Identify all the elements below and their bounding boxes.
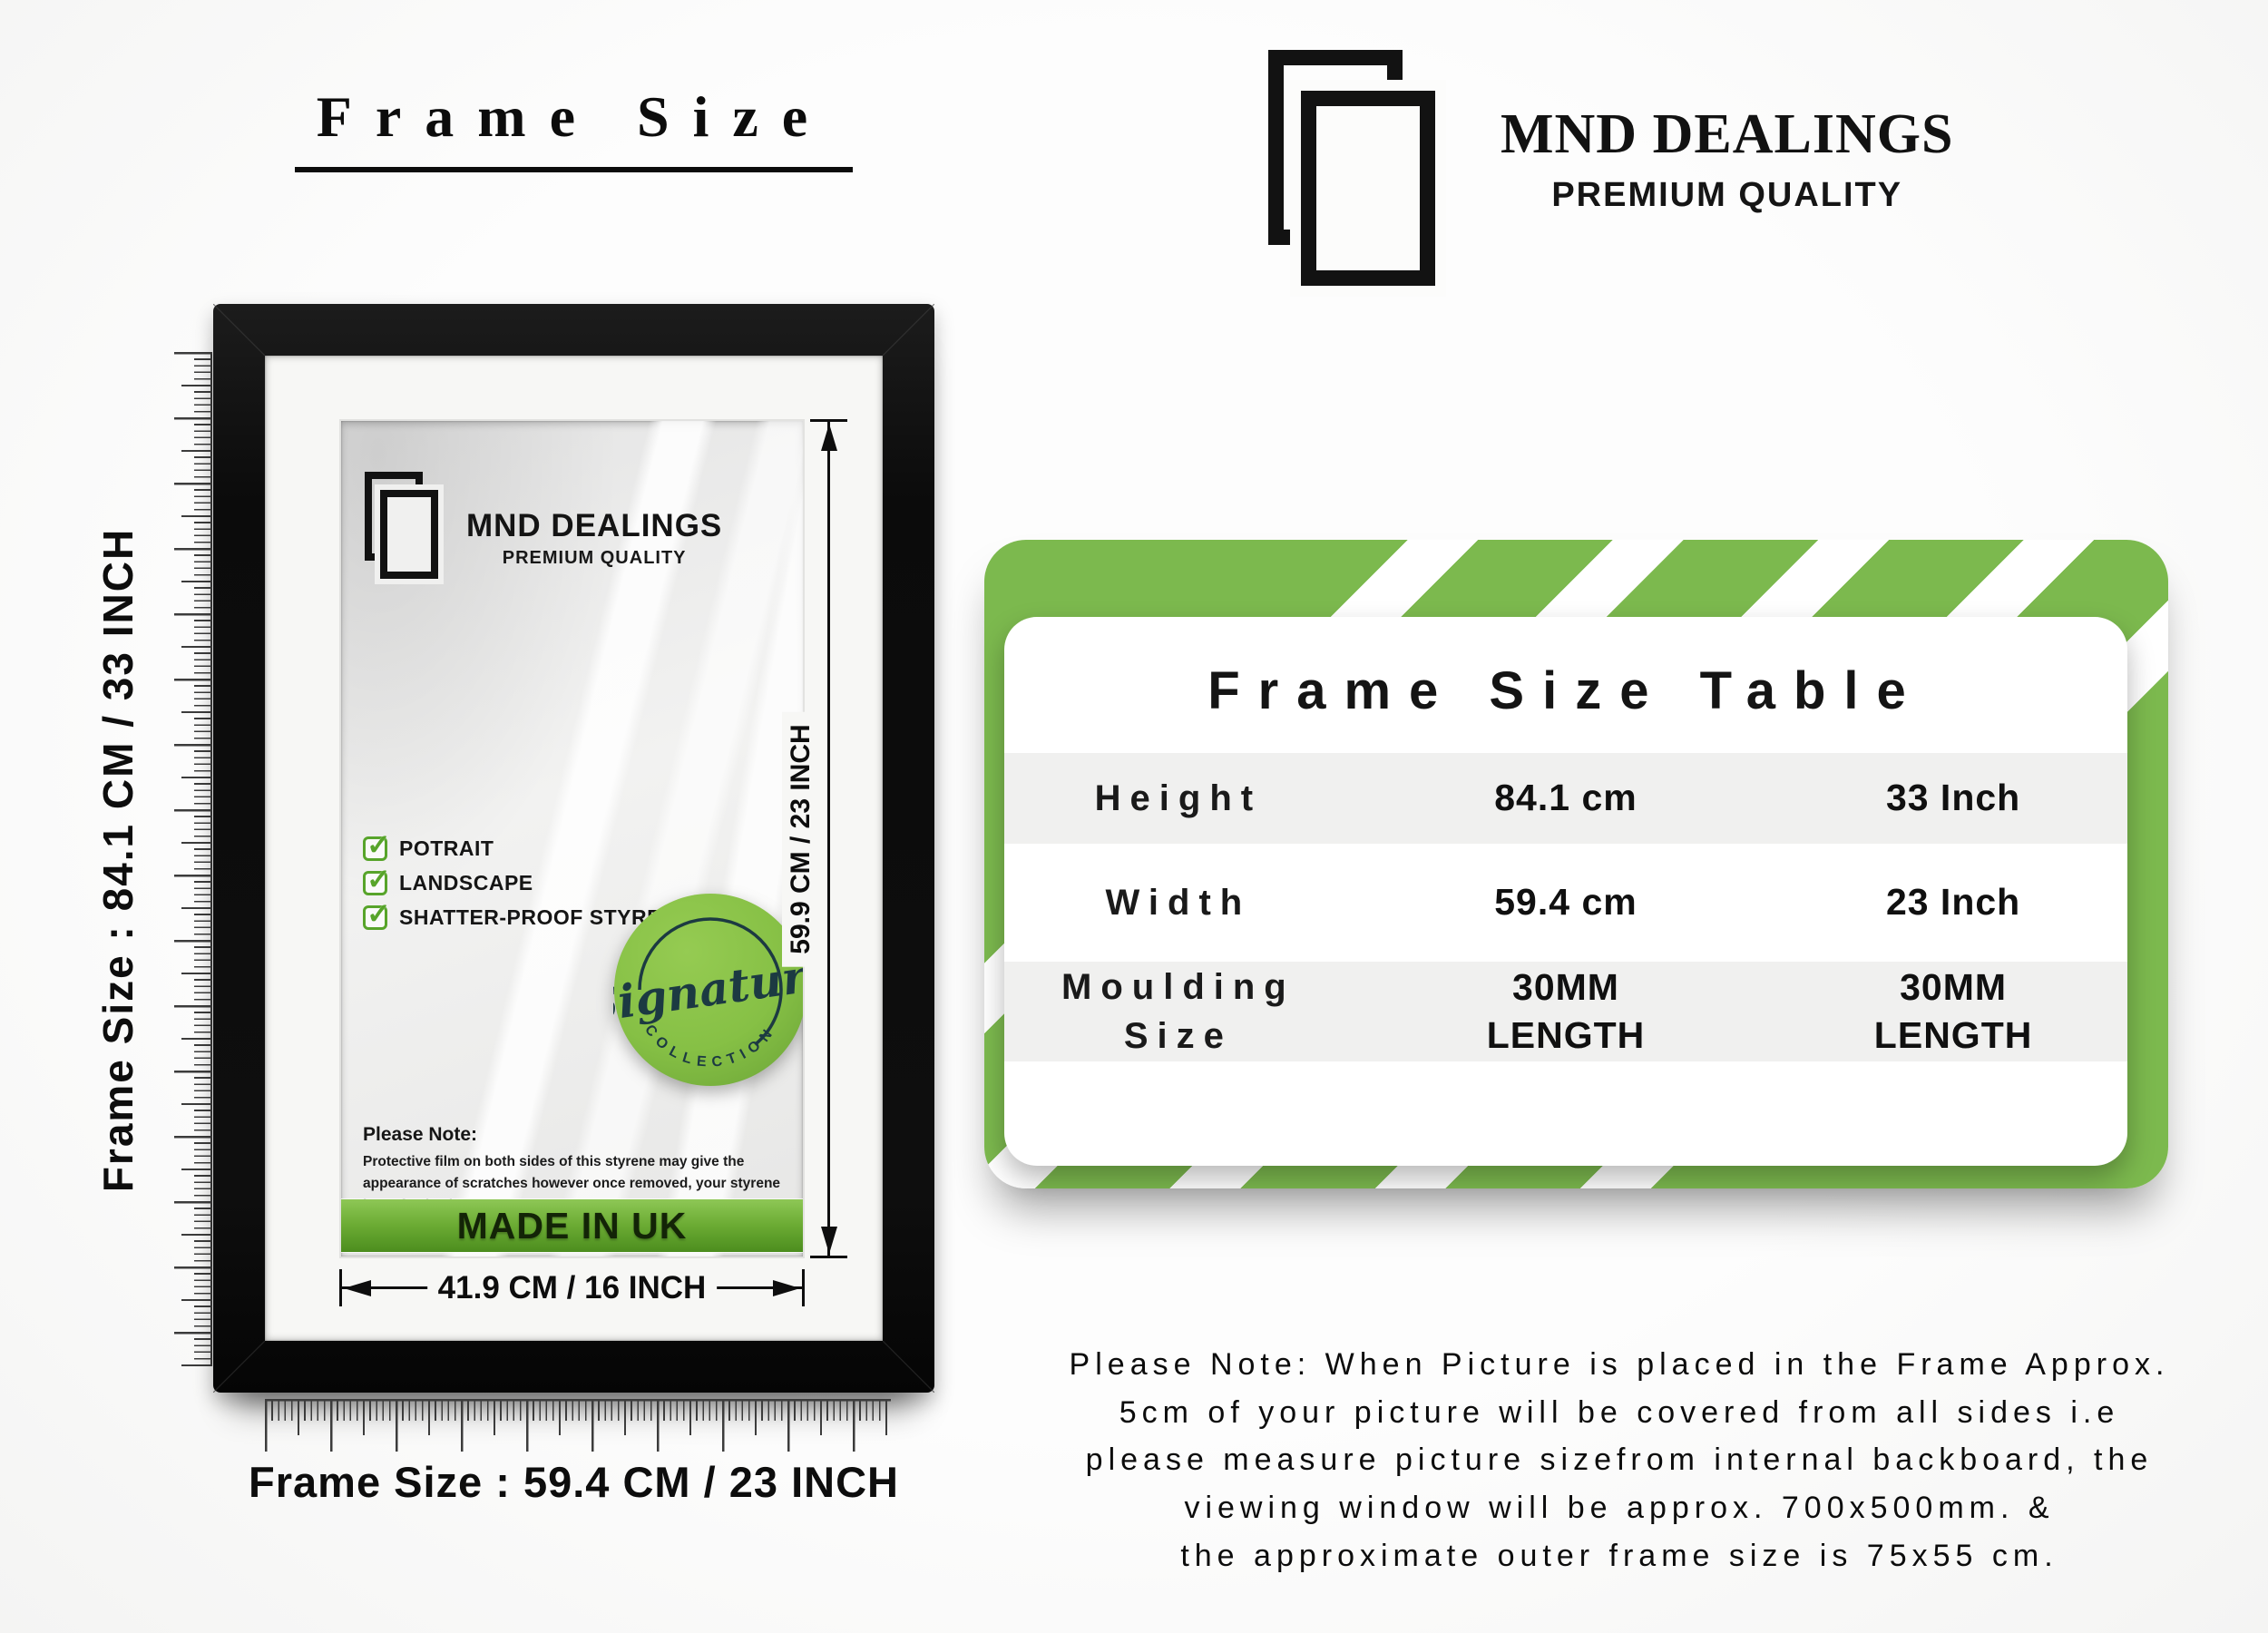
dimension-tick	[810, 419, 847, 422]
frames-logo-icon	[1268, 50, 1477, 322]
styrene-note-title: Please Note:	[363, 1124, 787, 1146]
checkbox-icon: ✓	[363, 836, 387, 861]
checkmark-icon: ✓	[367, 830, 391, 859]
row-metric-value: 84.1 cm	[1353, 774, 1779, 822]
checkmark-icon: ✓	[367, 899, 391, 928]
sizing-note-line: please measure picture sizefrom internal…	[1043, 1436, 2195, 1484]
sizing-note-line: Please Note: When Picture is placed in t…	[1043, 1341, 2195, 1389]
frame-mat: MND DEALINGS PREMIUM QUALITY ✓ POTRAIT ✓…	[265, 356, 883, 1341]
arrow-left-icon	[344, 1280, 371, 1296]
inner-brand-text: MND DEALINGS PREMIUM QUALITY	[466, 508, 722, 599]
frame-product-infographic: Frame Size Frame Size : 84.1 CM / 33 INC…	[0, 0, 2268, 1633]
feature-label: LANDSCAPE	[399, 871, 533, 895]
table-row: Width 59.4 cm 23 Inch	[1004, 844, 2127, 962]
frame-miter-corner	[883, 304, 934, 356]
checkbox-icon: ✓	[363, 905, 387, 930]
signature-collection-badge: Signature COLLECTION	[613, 893, 805, 1087]
frames-logo-icon	[365, 472, 455, 599]
inner-brand-name: MND DEALINGS	[466, 508, 722, 544]
frame-size-table-card: Frame Size Table Height 84.1 cm 33 Inch …	[1004, 617, 2127, 1166]
dimension-line	[827, 421, 830, 1257]
width-dimension-label: 41.9 CM / 16 INCH	[427, 1268, 718, 1308]
frame-miter-corner	[883, 1341, 934, 1393]
table-title: Frame Size Table	[1004, 660, 2127, 721]
signature-badge-svg: Signature COLLECTION	[613, 893, 805, 1087]
height-dimension-label: 59.9 CM / 23 INCH	[782, 711, 820, 966]
row-label: Width	[1004, 878, 1353, 927]
left-heading-wrap: Frame Size	[213, 83, 934, 172]
height-dimension-annotation: 59.9 CM / 23 INCH	[808, 419, 850, 1258]
vertical-ruler-label: Frame Size : 84.1 CM / 33 INCH	[93, 527, 142, 1191]
picture-frame: MND DEALINGS PREMIUM QUALITY ✓ POTRAIT ✓…	[213, 304, 934, 1393]
width-dimension-annotation: 41.9 CM / 16 INCH	[339, 1267, 805, 1309]
made-in-uk-label: MADE IN UK	[457, 1205, 688, 1247]
brand-text: MND DEALINGS PREMIUM QUALITY	[1501, 103, 1953, 322]
sizing-note-line: viewing window will be approx. 700x500mm…	[1043, 1484, 2195, 1532]
frame-miter-corner	[213, 1341, 265, 1393]
feature-item: ✓ LANDSCAPE	[363, 871, 691, 895]
horizontal-ruler-label: Frame Size : 59.4 CM / 23 INCH	[213, 1457, 934, 1507]
checkmark-icon: ✓	[367, 865, 391, 894]
row-label: Moulding Size	[1004, 963, 1353, 1061]
arrow-up-icon	[821, 424, 837, 451]
horizontal-ruler	[265, 1399, 891, 1452]
brand-logo: MND DEALINGS PREMIUM QUALITY	[1268, 50, 1953, 322]
inner-brand-tagline: PREMIUM QUALITY	[466, 548, 722, 569]
made-in-uk-banner: MADE IN UK	[341, 1199, 803, 1252]
checkbox-icon: ✓	[363, 871, 387, 895]
frame-size-table-panel: Frame Size Table Height 84.1 cm 33 Inch …	[984, 540, 2168, 1188]
dimension-tick	[339, 1269, 342, 1306]
inner-brand-logo: MND DEALINGS PREMIUM QUALITY	[365, 472, 722, 599]
sizing-note: Please Note: When Picture is placed in t…	[1043, 1341, 2195, 1579]
feature-label: POTRAIT	[399, 836, 494, 861]
feature-item: ✓ POTRAIT	[363, 836, 691, 861]
dimension-tick	[810, 1256, 847, 1258]
sizing-note-line: 5cm of your picture will be covered from…	[1043, 1389, 2195, 1437]
dimension-tick	[802, 1269, 805, 1306]
brand-tagline: PREMIUM QUALITY	[1501, 176, 1953, 215]
sizing-note-line: the approximate outer frame size is 75x5…	[1043, 1532, 2195, 1580]
page-title: Frame Size	[295, 83, 853, 172]
row-imperial-value: 33 Inch	[1779, 774, 2127, 822]
arrow-down-icon	[821, 1227, 837, 1254]
vertical-ruler	[174, 352, 212, 1366]
table-row: Height 84.1 cm 33 Inch	[1004, 753, 2127, 844]
logo-front-rect	[380, 490, 438, 579]
row-imperial-value: 23 Inch	[1779, 878, 2127, 926]
table-row: Moulding Size 30MM LENGTH 30MM LENGTH	[1004, 962, 2127, 1061]
row-metric-value: 59.4 cm	[1353, 878, 1779, 926]
logo-front-rect	[1301, 91, 1435, 286]
frame-miter-corner	[213, 304, 265, 356]
arrow-right-icon	[773, 1280, 800, 1296]
row-metric-value: 30MM LENGTH	[1353, 963, 1779, 1061]
brand-name: MND DEALINGS	[1501, 103, 1953, 167]
vertical-ruler-label-wrap: Frame Size : 84.1 CM / 33 INCH	[83, 354, 152, 1365]
frame-glass-window: MND DEALINGS PREMIUM QUALITY ✓ POTRAIT ✓…	[339, 419, 805, 1258]
row-imperial-value: 30MM LENGTH	[1779, 963, 2127, 1061]
row-label: Height	[1004, 774, 1353, 823]
